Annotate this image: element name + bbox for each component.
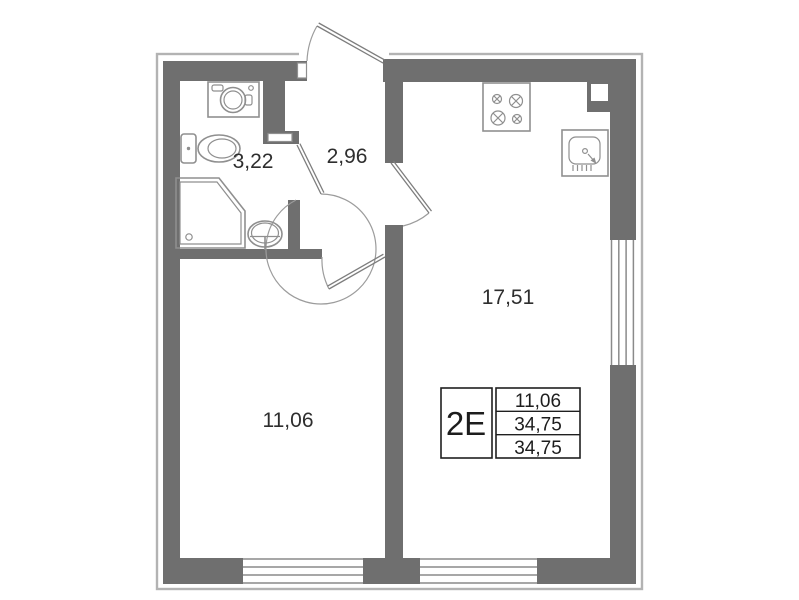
wall-right-upper [610, 59, 636, 240]
room-label-bedroom: 11,06 [263, 409, 314, 432]
wall-bottom-right [537, 558, 636, 584]
wall-bedroom-top [166, 249, 322, 259]
washing-machine-icon [208, 82, 259, 117]
wall-top-left [163, 61, 307, 81]
wall-left [163, 61, 180, 584]
interior-walls [166, 63, 611, 558]
stove-icon [483, 83, 530, 131]
kitchen-sink-icon [562, 130, 608, 176]
unit-info-table: 2Е 11,06 34,75 34,75 [441, 388, 580, 459]
wall-kitchen-divider-lower [385, 225, 403, 558]
floor-plan-page: 3,22 2,96 11,06 17,51 2Е 11,06 34,75 34,… [0, 0, 799, 600]
door-jamb-bathroom [268, 134, 292, 142]
window-right [612, 240, 634, 365]
wall-bottom-left [163, 558, 243, 584]
room-label-kitchen-living: 17,51 [482, 286, 535, 309]
kitchen-door [391, 161, 432, 226]
toilet-icon [181, 134, 240, 163]
window-bottom-left [243, 559, 363, 583]
bedroom-door [322, 254, 385, 289]
wall-kitchen-divider-upper [385, 81, 403, 163]
area-value-living: 11,06 [515, 391, 561, 412]
wall-right-lower [610, 365, 636, 584]
shower-icon [176, 178, 245, 248]
wall-top-right [383, 59, 636, 82]
room-label-hallway: 2,96 [327, 145, 368, 168]
window-bottom-right [420, 559, 537, 583]
unit-type-label: 2Е [446, 405, 486, 442]
washbasin-icon [248, 221, 282, 250]
area-value-overall: 34,75 [514, 438, 562, 459]
floor-plan-canvas: 3,22 2,96 11,06 17,51 2Е 11,06 34,75 34,… [0, 0, 799, 600]
wall-bottom-pier [363, 558, 420, 584]
room-label-bathroom: 3,22 [233, 150, 274, 173]
area-value-total: 34,75 [514, 415, 562, 436]
vent-shaft [587, 81, 611, 112]
door-jamb-entrance [298, 63, 307, 78]
